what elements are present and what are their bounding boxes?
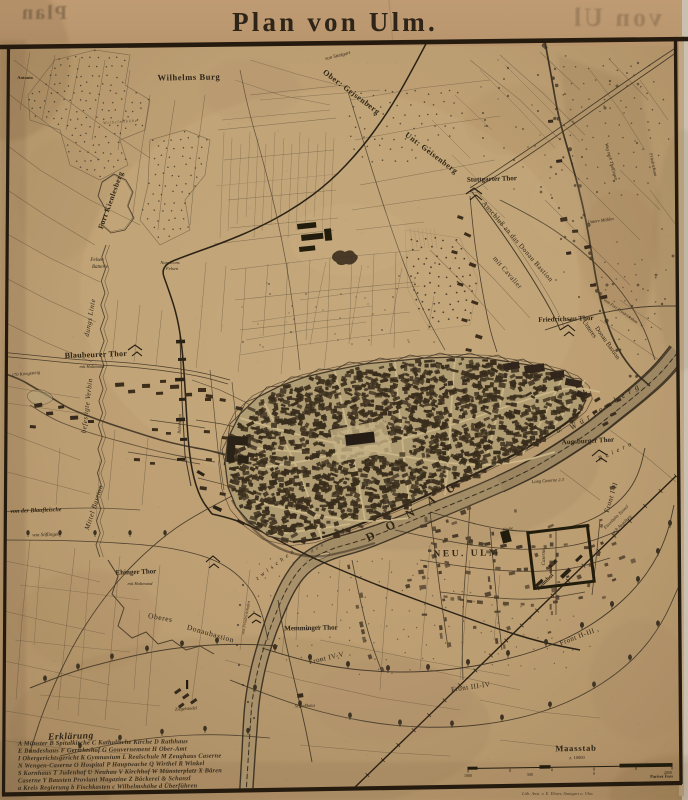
- svg-text:0: 0: [593, 771, 595, 776]
- svg-text:Felsen: Felsen: [165, 266, 179, 271]
- svg-text:von Söflingen: von Söflingen: [32, 533, 60, 539]
- svg-text:Pariser Fuss: Pariser Fuss: [650, 773, 673, 778]
- svg-text:500: 500: [527, 772, 533, 777]
- svg-text:Schießhaus: Schießhaus: [295, 703, 316, 709]
- svg-text:Bahnhofen: Bahnhofen: [176, 413, 182, 433]
- svg-text:Memminger Thor: Memminger Thor: [284, 624, 338, 633]
- svg-text:Plan von Ulm.: Plan von Ulm.: [232, 7, 438, 37]
- svg-text:z. 10000: z. 10000: [569, 755, 585, 760]
- svg-text:Napoleons: Napoleons: [159, 260, 179, 265]
- svg-text:Felsen: Felsen: [89, 258, 104, 263]
- svg-text:von Ul: von Ul: [571, 3, 662, 32]
- svg-text:Batterie: Batterie: [92, 265, 109, 270]
- svg-text:Wilhelms Burg: Wilhelms Burg: [158, 71, 221, 82]
- svg-text:1000: 1000: [464, 773, 472, 778]
- svg-text:Ehinger Thor: Ehinger Thor: [115, 567, 156, 576]
- svg-text:Antonia: Antonia: [17, 75, 33, 80]
- svg-text:Caserne: Caserne: [542, 548, 547, 565]
- svg-text:mit Haltmund: mit Haltmund: [80, 364, 106, 369]
- svg-text:Maasstab: Maasstab: [555, 743, 597, 754]
- svg-text:Plan: Plan: [20, 2, 67, 24]
- svg-text:NEU. ULM: NEU. ULM: [433, 548, 500, 559]
- svg-text:mit Haltmund: mit Haltmund: [128, 581, 154, 586]
